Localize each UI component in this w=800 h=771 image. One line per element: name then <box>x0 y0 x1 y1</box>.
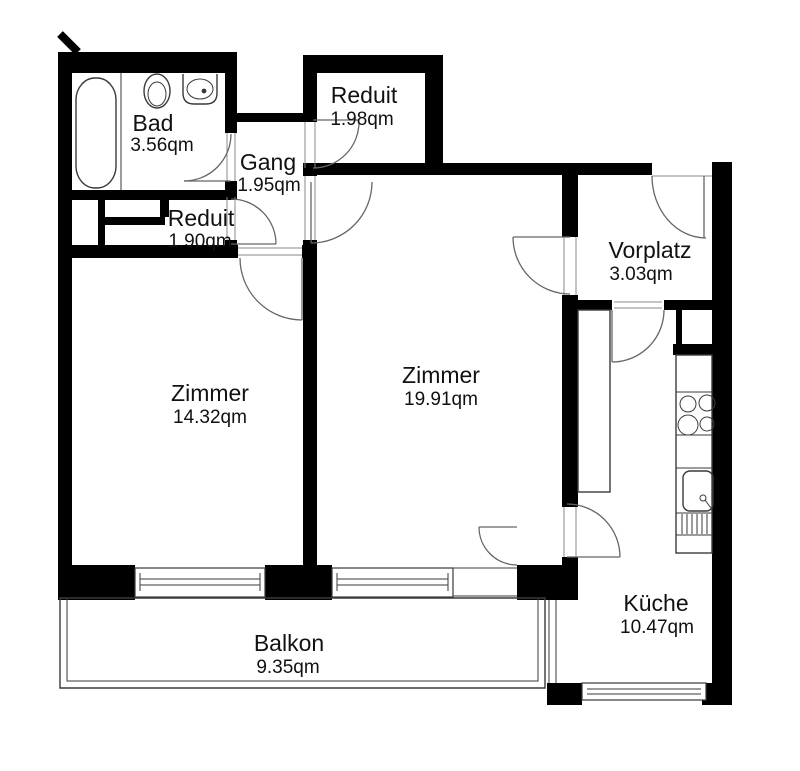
wall-segment <box>98 200 105 246</box>
wall-segment <box>237 113 303 122</box>
washbasin-rect <box>183 74 217 104</box>
wall-segment <box>72 190 237 200</box>
wall-segment <box>303 258 317 565</box>
room-label-zimmer-left: Zimmer <box>171 380 249 406</box>
wall-segment <box>425 73 443 163</box>
wall-segment <box>547 683 582 705</box>
room-area-balkon: 9.35qm <box>256 657 319 678</box>
wall-segment <box>105 217 165 225</box>
wall-segment <box>265 565 332 600</box>
wall-segment <box>303 73 317 122</box>
wall-segment <box>303 163 652 175</box>
room-label-balkon: Balkon <box>254 630 324 656</box>
vorplatz-zimmer-door <box>513 237 570 294</box>
wall-segment <box>58 565 135 600</box>
wall-segment <box>58 52 72 600</box>
room-area-reduit-small: 1.90qm <box>168 231 231 252</box>
window-kueche <box>582 683 706 700</box>
wall-segment <box>302 245 317 258</box>
kueche-door <box>612 310 664 362</box>
wall-segment <box>225 73 237 133</box>
room-area-kueche: 10.47qm <box>620 617 694 638</box>
room-label-reduit-top: Reduit <box>331 82 398 108</box>
room-area-reduit-top: 1.98qm <box>330 109 393 130</box>
wall-segment <box>664 300 712 310</box>
floorplan-page: Bad 3.56qm Gang 1.95qm Reduit 1.98qm Red… <box>0 0 800 771</box>
window-zimmer-left <box>135 568 265 597</box>
wall-segment <box>517 565 578 600</box>
wall-segment <box>562 175 578 237</box>
floorplan-drawing: Bad 3.56qm Gang 1.95qm Reduit 1.98qm Red… <box>0 0 800 771</box>
zimmer-left-door <box>240 258 302 320</box>
room-area-vorplatz: 3.03qm <box>609 264 672 285</box>
room-label-bad: Bad <box>133 110 174 136</box>
room-label-zimmer-center: Zimmer <box>402 362 480 388</box>
balcony-door-threshold <box>453 568 517 596</box>
window-zimmer-center <box>332 568 453 597</box>
washbasin-oval <box>144 74 170 108</box>
zimmer-center-door <box>311 182 372 243</box>
wall-segment <box>676 310 682 344</box>
zimmer-balcony-door <box>479 527 517 565</box>
room-label-kueche: Küche <box>623 590 688 616</box>
bathtub <box>76 78 116 188</box>
wall-segment <box>562 295 578 507</box>
room-area-gang: 1.95qm <box>237 175 300 196</box>
room-area-zimmer-left: 14.32qm <box>173 407 247 428</box>
room-label-reduit-small: Reduit <box>168 205 235 231</box>
room-label-vorplatz: Vorplatz <box>608 237 691 263</box>
wall-segment <box>578 300 612 310</box>
wall-corner-stub <box>60 34 78 52</box>
room-label-gang: Gang <box>240 149 296 175</box>
wall-segment <box>303 55 443 73</box>
wall-segment <box>673 344 712 355</box>
wall-segment <box>58 52 237 73</box>
kitchen-counter-left <box>578 310 610 492</box>
wall-segment <box>712 162 732 705</box>
entrance-door <box>652 176 706 238</box>
reduit-small-door <box>231 199 276 244</box>
room-area-zimmer-center: 19.91qm <box>404 389 478 410</box>
kueche-balcony-door <box>567 504 620 557</box>
room-area-bad: 3.56qm <box>130 135 193 156</box>
